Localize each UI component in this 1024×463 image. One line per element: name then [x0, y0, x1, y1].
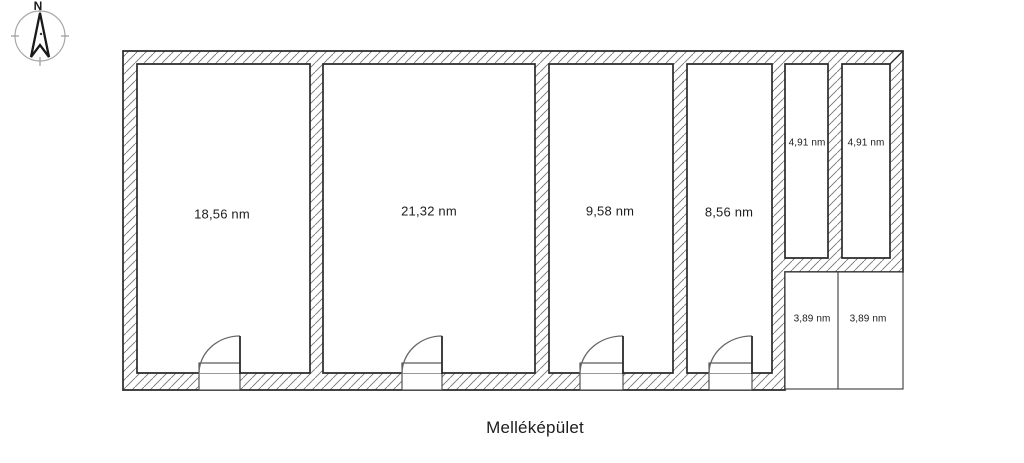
room-label-1: 18,56 nm [194, 207, 250, 222]
north-label: N [34, 0, 43, 13]
floorplan-canvas: N 18,56 nm 21,32 nm 9,58 nm 8,56 nm 4,91… [0, 0, 1024, 463]
north-arrow-icon [11, 7, 69, 66]
door-symbol-room2 [402, 336, 442, 390]
room-label-4: 8,56 nm [705, 205, 753, 220]
room-label-2: 21,32 nm [401, 204, 457, 219]
plan-title: Melléképület [486, 418, 584, 438]
door-symbol-room1 [199, 336, 240, 390]
room-label-5: 4,91 nm [789, 138, 826, 149]
room-label-8: 3,89 nm [850, 314, 887, 325]
room-label-3: 9,58 nm [586, 204, 634, 219]
room-label-6: 4,91 nm [848, 138, 885, 149]
room-label-7: 3,89 nm [794, 314, 831, 325]
annex-rooms [785, 272, 903, 389]
floor-plan-drawing [0, 0, 1024, 463]
door-symbol-room4 [709, 336, 752, 390]
door-symbol-room3 [580, 336, 623, 390]
